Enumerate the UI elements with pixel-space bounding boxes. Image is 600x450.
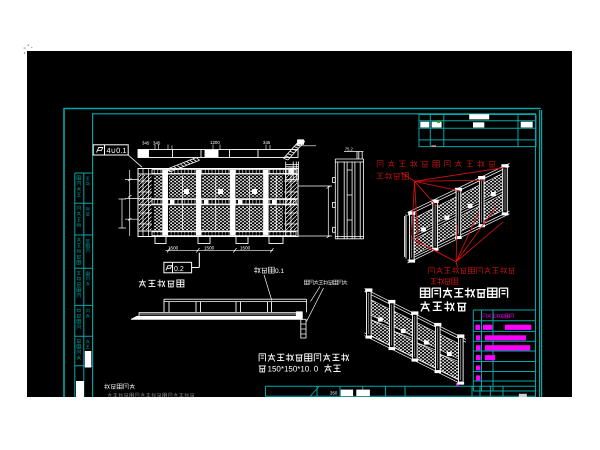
svg-text:350: 350	[330, 391, 338, 396]
svg-text:0.2: 0.2	[174, 266, 184, 273]
svg-text:75.2: 75.2	[345, 146, 354, 151]
svg-text:1500: 1500	[240, 245, 251, 250]
svg-text:345: 345	[153, 141, 161, 146]
svg-text:1500: 1500	[204, 245, 215, 250]
svg-text:4∪0.1: 4∪0.1	[107, 146, 127, 155]
svg-text:0.1: 0.1	[275, 268, 284, 275]
svg-text:345: 345	[263, 140, 271, 145]
svg-text:1200: 1200	[210, 140, 220, 145]
svg-text:1500: 1500	[168, 245, 179, 250]
svg-text:150*150*10. 0: 150*150*10. 0	[268, 365, 319, 374]
svg-text:345: 345	[142, 141, 150, 146]
